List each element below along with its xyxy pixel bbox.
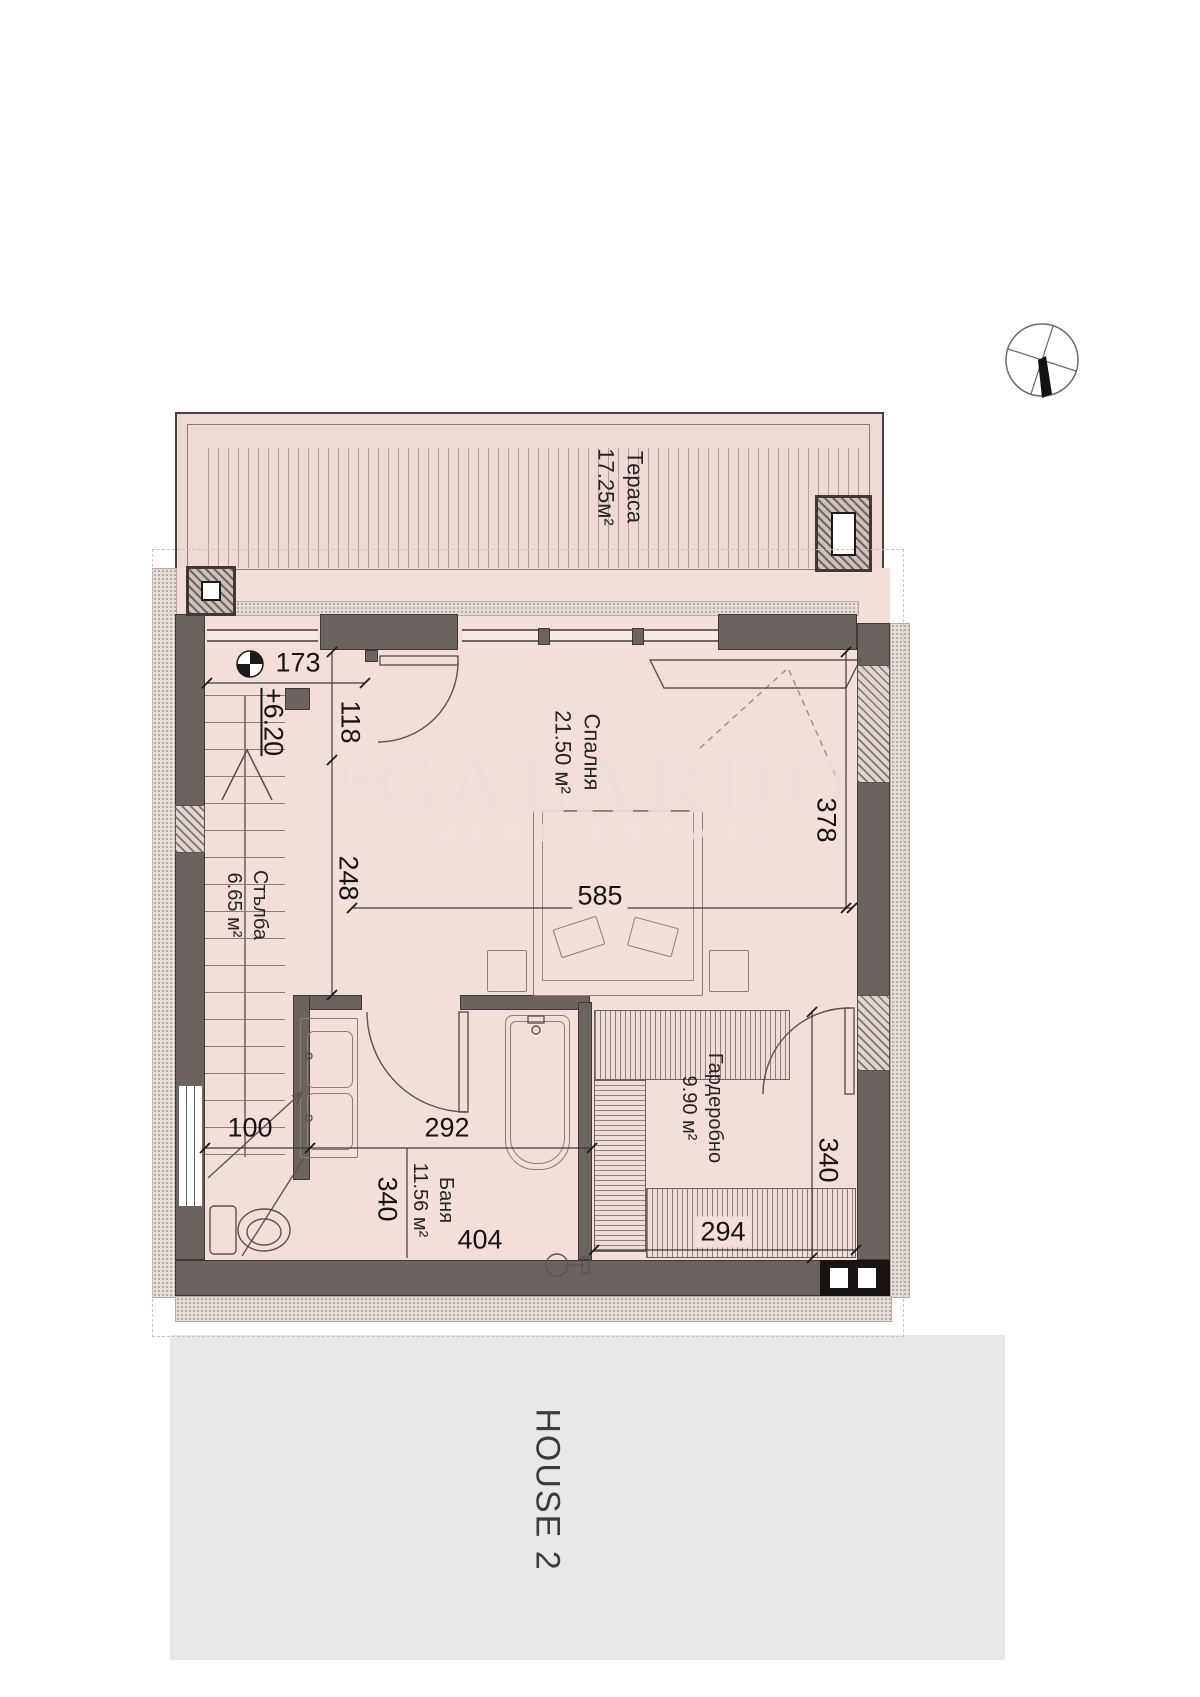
- dim-585: 585: [572, 881, 627, 912]
- room-name: Баня: [433, 1163, 459, 1238]
- dim-100: 100: [227, 1113, 272, 1144]
- floor-plan-canvas: Тераса 17.25м² Спалня 21.50 м² Стълба 6.…: [0, 0, 1200, 1697]
- dim-294: 294: [695, 1217, 750, 1248]
- wardrobe-label: Гардеробно 9.90 м²: [676, 1053, 728, 1163]
- dim-292: 292: [424, 1113, 469, 1144]
- watermark-logo-icon: [344, 764, 378, 794]
- dim-404: 404: [457, 1225, 502, 1256]
- room-name: Гардеробно: [702, 1053, 728, 1163]
- site-boundary: [152, 549, 904, 1337]
- dim-173: 173: [275, 648, 320, 679]
- room-name: Тераса: [620, 448, 649, 526]
- room-area: 17.25м²: [591, 448, 620, 526]
- dim-378: 378: [811, 797, 842, 842]
- bedroom-label: Спалня 21.50 м²: [548, 710, 605, 794]
- room-name: Стълба: [247, 870, 273, 940]
- dim-248: 248: [333, 855, 364, 900]
- bathroom-label: Баня 11.56 м²: [407, 1163, 459, 1238]
- stairs-label: Стълба 6.65 м²: [221, 870, 273, 940]
- room-area: 11.56 м²: [407, 1163, 433, 1238]
- dim-elevation: +6.20: [258, 688, 289, 756]
- dim-340-wardrobe: 340: [813, 1137, 844, 1182]
- room-area: 9.90 м²: [676, 1053, 702, 1163]
- room-area: 6.65 м²: [221, 870, 247, 940]
- dim-118: 118: [335, 700, 366, 743]
- terrace-label: Тераса 17.25м²: [591, 448, 648, 526]
- watermark-brand: GALARDO: [375, 742, 860, 831]
- dim-340-bath: 340: [372, 1176, 403, 1221]
- watermark-tagline: REAL ESTATE: [436, 820, 788, 849]
- room-name: Спалня: [577, 710, 606, 794]
- room-area: 21.50 м²: [548, 710, 577, 794]
